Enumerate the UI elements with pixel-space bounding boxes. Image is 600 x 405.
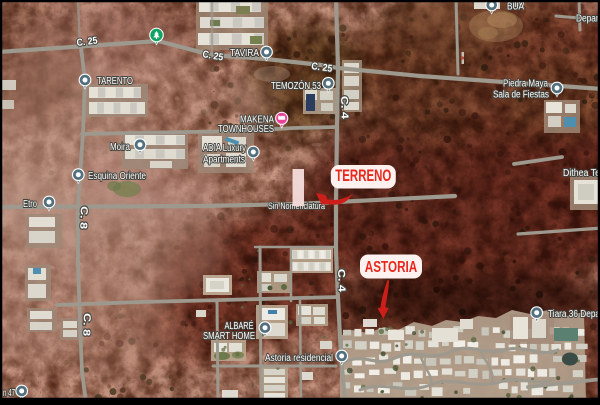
svg-text:TEMOZÓN 53: TEMOZÓN 53 [271, 79, 321, 92]
svg-text:n 47: n 47 [3, 388, 15, 399]
svg-text:Moira: Moira [110, 142, 130, 153]
svg-text:SMART HOME: SMART HOME [203, 331, 255, 342]
svg-text:TARENTO: TARENTO [97, 76, 133, 87]
svg-text:TAVIRA: TAVIRA [230, 48, 259, 59]
svg-text:Tiara 36 Depa: Tiara 36 Depa [548, 309, 600, 320]
svg-text:Apartments: Apartments [203, 155, 245, 166]
svg-text:ADIA Luxury: ADIA Luxury [203, 143, 246, 154]
svg-text:TERRENO: TERRENO [335, 167, 391, 185]
svg-text:TOWNHOUSES: TOWNHOUSES [218, 124, 274, 135]
svg-text:Dithea Te: Dithea Te [563, 168, 600, 179]
svg-text:Esquina Oriente: Esquina Oriente [88, 171, 146, 182]
svg-text:BUA: BUA [507, 2, 524, 13]
svg-text:Sala de Fiestas: Sala de Fiestas [493, 90, 549, 101]
svg-text:Depart: Depart [576, 14, 600, 25]
svg-text:C. 4: C. 4 [335, 269, 347, 293]
svg-text:Astoria residencial: Astoria residencial [265, 353, 333, 364]
svg-text:Etro: Etro [23, 199, 37, 210]
svg-text:C. 4: C. 4 [338, 96, 350, 120]
svg-text:ASTORIA: ASTORIA [365, 259, 418, 276]
svg-text:C. 8: C. 8 [80, 313, 92, 337]
svg-text:C. 8: C. 8 [77, 206, 89, 230]
svg-text:Piedra Maya: Piedra Maya [503, 79, 548, 90]
